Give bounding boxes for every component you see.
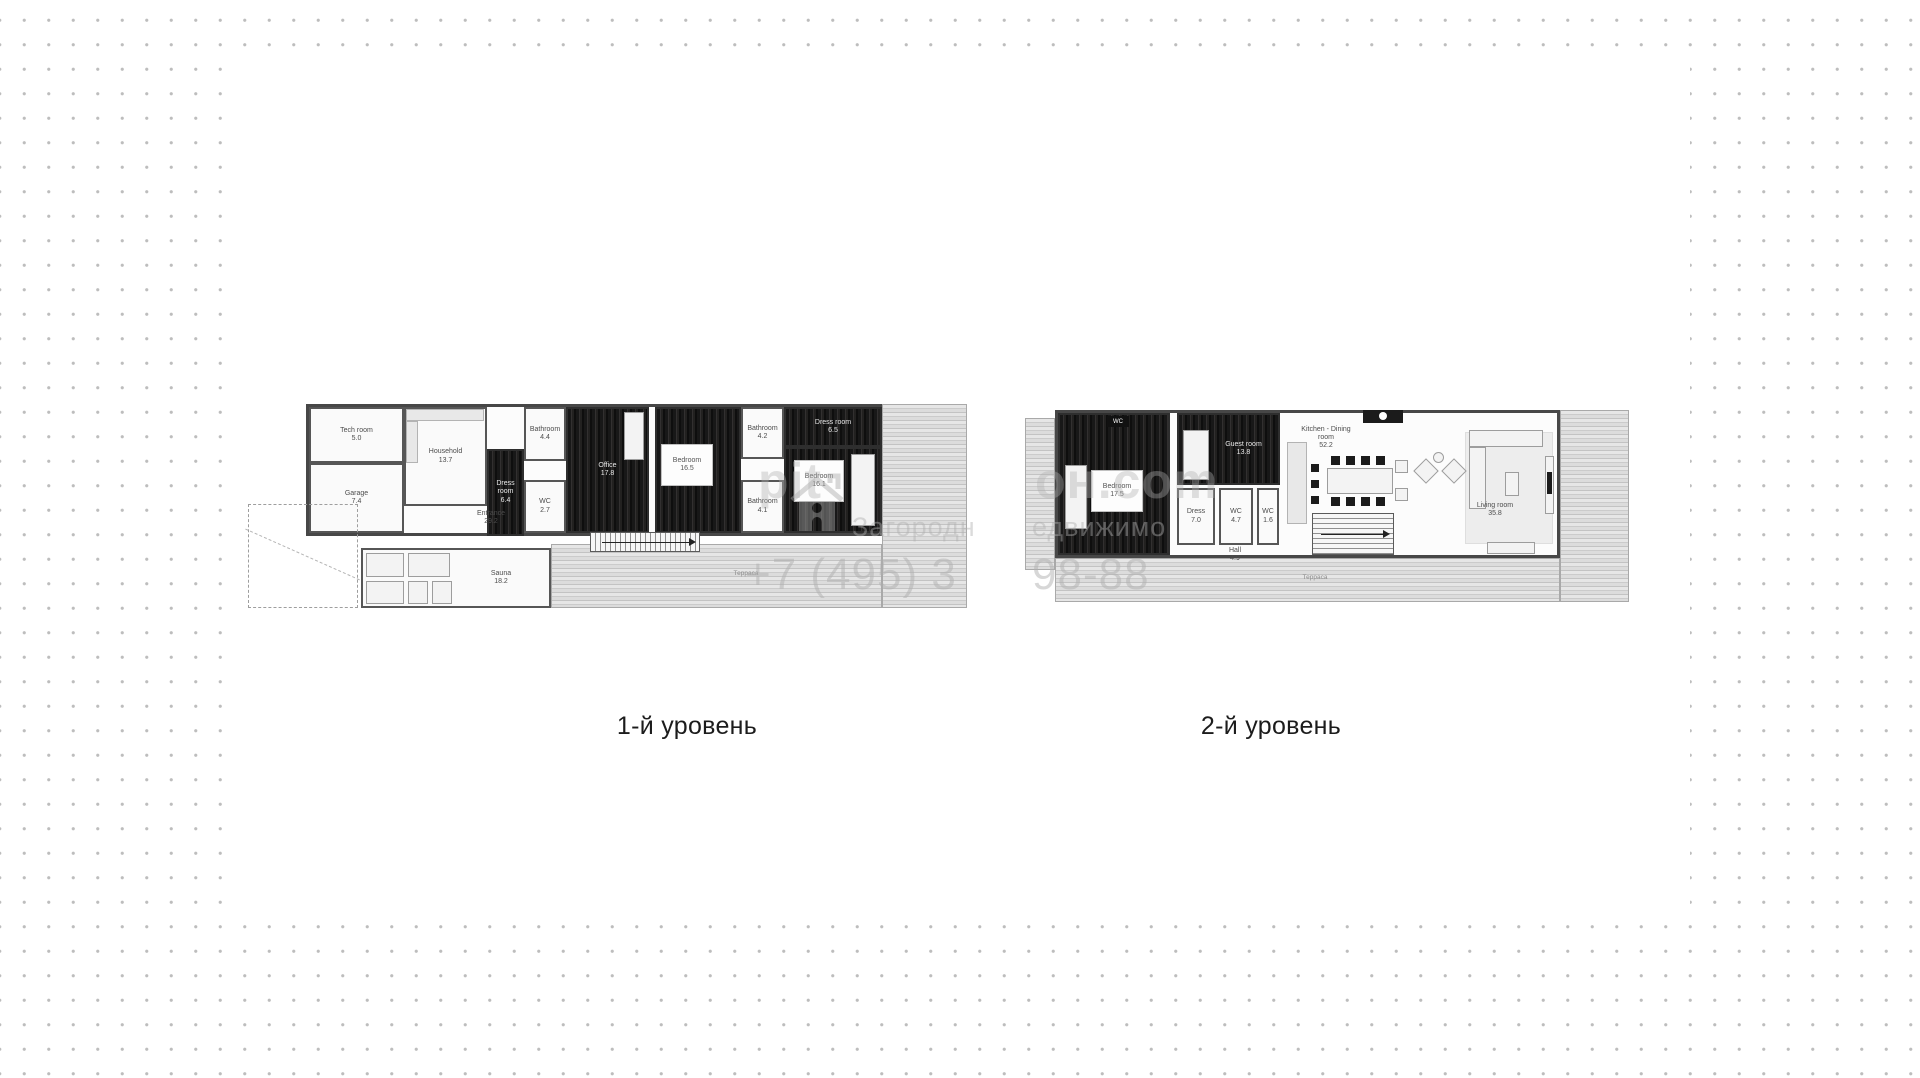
terrace-label: Терраса: [706, 570, 786, 577]
furniture: [1433, 452, 1444, 463]
furniture: [1361, 497, 1370, 506]
room-label: Household13.7: [429, 448, 462, 464]
driveway-diagonal: [246, 529, 361, 581]
furniture: [408, 553, 450, 577]
furniture: [1327, 468, 1393, 494]
room-wc: WC2.7: [524, 480, 566, 533]
room-label: WC1.6: [1262, 508, 1274, 524]
floor-plan-level-2: Bedroom17.5WCGuest room13.8Dress7.0WC4.7…: [1025, 410, 1629, 610]
furniture: [624, 412, 644, 460]
room-label: Kitchen - Dining room52.2: [1293, 426, 1359, 450]
stairs-line: [1321, 534, 1383, 535]
room-label: Sauna18.2: [491, 570, 511, 586]
room-bathroom: Bathroom4.2: [741, 407, 784, 459]
terrace-label: Терраса: [1275, 574, 1355, 581]
furniture: [406, 421, 418, 463]
terrace-right: [882, 404, 967, 608]
room-label: Bathroom4.1: [747, 498, 777, 514]
room-living-room-label: Living room35.8: [1465, 502, 1525, 518]
room-label: Dress room6.4: [489, 480, 522, 504]
furniture: [1346, 456, 1355, 465]
room-label: Office17.8: [598, 462, 616, 478]
furniture: [1376, 456, 1385, 465]
wc-tag: WC: [1107, 416, 1129, 427]
room-label: Bathroom4.4: [530, 426, 560, 442]
room-tech-room: Tech room5.0: [309, 407, 404, 463]
furniture: [1469, 447, 1486, 509]
staircase: [1312, 513, 1394, 555]
room-label: Bedroom17.5: [1103, 483, 1131, 499]
furniture: [1311, 464, 1319, 472]
driveway-outline: [248, 504, 358, 608]
furniture: [851, 454, 875, 526]
room-wc: WC4.7: [1219, 488, 1253, 545]
room-label: Bedroom16.1: [805, 473, 833, 489]
furniture: [408, 581, 428, 604]
furniture: [1395, 488, 1408, 501]
furniture: [1361, 456, 1370, 465]
room-label: Hall4.9: [1210, 547, 1260, 563]
room-label: Bathroom4.2: [747, 425, 777, 441]
furniture: [1376, 497, 1385, 506]
page-background: Tech room5.0Garage7.4Household13.7Dress …: [0, 0, 1920, 1078]
bed-label-box: Bedroom17.5: [1091, 470, 1143, 512]
furniture: [432, 581, 452, 604]
room-dress-room: Dress room6.5: [784, 407, 882, 447]
staircase: [590, 532, 700, 552]
floor-plan-level-1: Tech room5.0Garage7.4Household13.7Dress …: [306, 404, 967, 610]
room-label: Living room35.8: [1465, 502, 1525, 518]
stairs-line: [602, 542, 689, 543]
furniture: [406, 409, 484, 421]
room-label: Entrance29.2: [456, 510, 526, 526]
deck-right: [1560, 410, 1629, 602]
furniture: [1395, 460, 1408, 473]
room-label: Tech room5.0: [340, 427, 373, 443]
furniture: [366, 581, 404, 604]
furniture: [1331, 497, 1340, 506]
furniture: [1331, 456, 1340, 465]
stairs-arrow-icon: [1383, 530, 1390, 538]
stairs-arrow-icon: [689, 538, 696, 546]
furniture: [1183, 430, 1209, 480]
label-kitchen-dining-room: Kitchen - Dining room52.2: [1293, 426, 1359, 450]
furniture: [1547, 472, 1552, 494]
room-label: Guest room13.8: [1225, 441, 1262, 457]
room-bathroom: Bathroom4.4: [524, 407, 566, 461]
room-hall-label: Hall4.9: [1210, 547, 1260, 563]
room-dress: Dress7.0: [1177, 488, 1215, 545]
room-label: Dress7.0: [1187, 508, 1205, 524]
bed-label-box: Bedroom16.1: [794, 460, 844, 502]
furniture: [1311, 496, 1319, 504]
furniture: [1287, 442, 1307, 524]
furniture: [1311, 480, 1319, 488]
room-label: Dress room6.5: [815, 419, 851, 435]
level-2-label: 2-й уровень: [1201, 712, 1341, 741]
furniture: [1487, 542, 1535, 554]
furniture: [1379, 412, 1387, 420]
room-label: WC2.7: [539, 498, 551, 514]
room-wc: WC1.6: [1257, 488, 1279, 545]
bed-label-box: Bedroom16.5: [661, 444, 713, 486]
level-1-label: 1-й уровень: [617, 712, 757, 741]
furniture: [366, 553, 404, 577]
room-bathroom: Bathroom4.1: [741, 480, 784, 533]
room-entrance-label: Entrance29.2: [456, 510, 526, 526]
room-label: Bedroom16.5: [673, 457, 701, 473]
room-label: WC4.7: [1230, 508, 1242, 524]
deck-left: [1025, 418, 1055, 570]
furniture: [1065, 465, 1087, 529]
furniture: [1469, 430, 1543, 447]
furniture: [1505, 472, 1519, 496]
furniture: [1346, 497, 1355, 506]
